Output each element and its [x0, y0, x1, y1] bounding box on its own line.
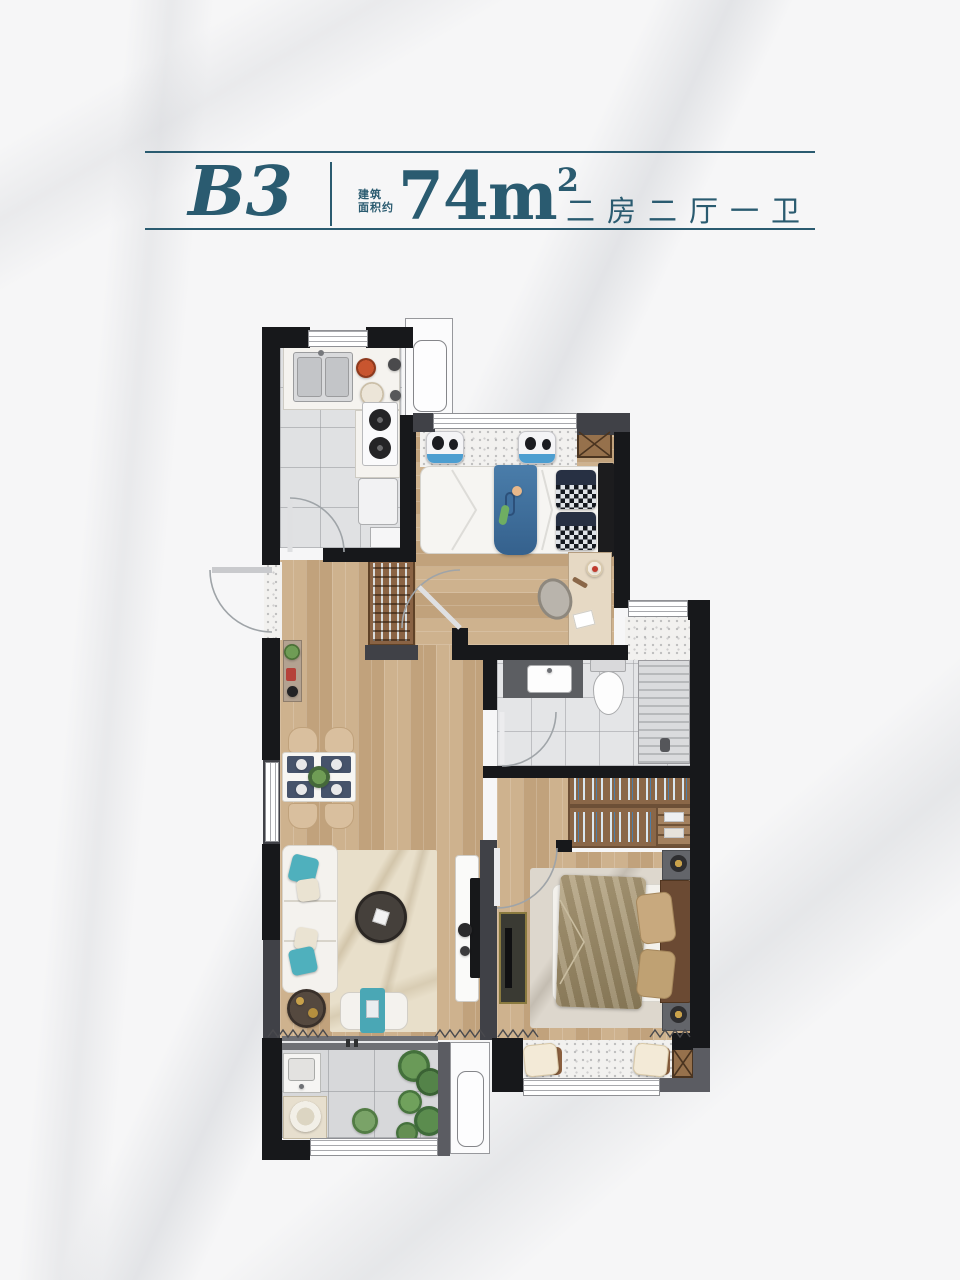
- nightstand-lamp: [670, 855, 687, 872]
- laundry-faucet-icon: [299, 1084, 304, 1089]
- master-pillow: [636, 948, 677, 1000]
- wall: [480, 840, 497, 1040]
- wall: [452, 645, 628, 660]
- area-label: 建筑 面积约: [358, 189, 394, 215]
- bench-book: [366, 1000, 379, 1018]
- shower-drain: [660, 738, 670, 752]
- wall: [556, 840, 572, 852]
- panda-pillow-base: [519, 454, 555, 463]
- wall: [323, 548, 415, 562]
- master-blanket: [556, 875, 647, 1010]
- wardrobe-hangers: [574, 812, 652, 842]
- side-table: [287, 989, 326, 1028]
- area-value: 74m2: [398, 163, 579, 229]
- desk-cake-cherry: [592, 566, 598, 572]
- wall: [660, 1078, 710, 1092]
- wall: [262, 1140, 310, 1160]
- bay-pillow-cream: [522, 1042, 559, 1077]
- dining-plate: [331, 759, 342, 770]
- sliding-door-handle: [354, 1039, 358, 1047]
- area-unit: m: [488, 157, 557, 235]
- page-background: B3 建筑 面积约 74m2 二房二厅一卫: [0, 0, 960, 1280]
- sofa-pillow-cream: [296, 878, 321, 903]
- shoe-cabinet-frame: [365, 645, 418, 660]
- kitchen-sink-basin-left: [297, 357, 322, 397]
- wall: [413, 413, 435, 432]
- child-figure-head: [512, 486, 522, 496]
- wall: [690, 618, 710, 1048]
- storage-box-crossed: [672, 1048, 694, 1078]
- wall: [366, 327, 413, 348]
- master-tv-cabinet: [499, 912, 527, 1004]
- shoe-cabinet: [368, 558, 415, 646]
- wall: [262, 327, 280, 565]
- dining-plate: [331, 784, 342, 795]
- speaker: [460, 946, 470, 956]
- wardrobe-folded-clothes: [664, 828, 684, 838]
- stove-burner-front: [369, 409, 391, 431]
- bowl-decor-dark2: [390, 390, 401, 401]
- dining-chair: [288, 727, 318, 753]
- panda-pillow-base: [427, 454, 463, 463]
- entry-door-arc: [210, 570, 272, 632]
- laundry-sink-basin: [288, 1058, 315, 1081]
- bowl-decor-dark1: [388, 358, 401, 371]
- checker-pattern: [556, 526, 596, 550]
- dining-side-window: [265, 762, 279, 842]
- kitchen-sink-basin-right: [325, 357, 349, 397]
- bay-pillow-cream: [632, 1042, 669, 1077]
- checker-pillow: [556, 470, 596, 509]
- wall: [262, 638, 280, 760]
- wall: [262, 844, 280, 940]
- speaker: [458, 923, 472, 937]
- wall: [263, 940, 280, 1038]
- balcony-side-window-unit: [450, 1042, 490, 1154]
- wardrobe-folded-clothes: [664, 812, 684, 822]
- dining-chair: [324, 727, 354, 753]
- dining-chair: [288, 803, 318, 829]
- kitchen-window: [308, 330, 368, 347]
- bath-niche-window: [628, 600, 688, 617]
- shoe-cabinet-slats: [373, 563, 410, 641]
- kitchen-fridge: [358, 478, 398, 525]
- layout-text: 二房二厅一卫: [566, 188, 812, 230]
- entry-decor-black: [287, 686, 298, 697]
- dining-centerpiece-plant: [308, 766, 330, 788]
- panda-pillow-patch: [449, 439, 458, 450]
- entry-threshold: [264, 562, 282, 640]
- dining-plate: [296, 784, 307, 795]
- wardrobe-hanger-row: [568, 806, 658, 848]
- nightstand-lamp: [670, 1006, 687, 1023]
- header-divider: [330, 162, 332, 226]
- wall: [614, 432, 630, 608]
- wardrobe-hangers: [574, 778, 687, 800]
- dining-chair: [324, 803, 354, 829]
- master-tv-screen: [505, 928, 512, 988]
- area-label-line2: 面积约: [358, 202, 394, 215]
- master-pillow: [635, 891, 677, 945]
- entry-plant: [284, 644, 300, 660]
- window-pane: [413, 340, 447, 412]
- plate-decor-red: [356, 358, 376, 378]
- balcony-plant: [352, 1108, 378, 1134]
- checker-pillow: [556, 512, 596, 550]
- unit-title: B3: [158, 158, 323, 226]
- side-table-gold-decor: [308, 1008, 318, 1018]
- balcony-window: [310, 1138, 438, 1156]
- side-table-gold-decor: [296, 997, 304, 1005]
- panda-pillow: [518, 431, 556, 464]
- plan-header: B3 建筑 面积约 74m2 二房二厅一卫: [0, 0, 960, 300]
- wall: [492, 1038, 523, 1092]
- stove-burner-back: [369, 437, 391, 459]
- bath-niche-floor: [625, 617, 690, 660]
- wall: [483, 650, 497, 710]
- area-number: 74: [398, 157, 488, 235]
- wall: [438, 1042, 450, 1156]
- kitchen-faucet-icon: [318, 350, 324, 356]
- entry-decor-red: [286, 668, 296, 681]
- sliding-door-handle: [346, 1039, 350, 1047]
- dining-plate: [296, 759, 307, 770]
- balcony-sliding-door: [282, 1036, 438, 1050]
- checker-pattern: [556, 485, 596, 509]
- wall: [400, 415, 416, 562]
- sofa-pillow-teal: [288, 946, 319, 977]
- area-label-line1: 建筑: [358, 189, 394, 202]
- panda-pillow-patch: [432, 436, 444, 450]
- window-pane: [457, 1071, 484, 1147]
- wall: [483, 766, 710, 778]
- sink-faucet-icon: [547, 668, 552, 673]
- washer-door: [290, 1101, 321, 1132]
- child-bedroom-window: [433, 413, 577, 429]
- wall: [688, 600, 710, 620]
- child-headboard: [598, 463, 614, 557]
- panda-pillow-patch: [525, 437, 536, 450]
- master-bay-window: [523, 1078, 660, 1096]
- panda-pillow: [426, 431, 464, 464]
- panda-pillow-patch: [542, 439, 551, 450]
